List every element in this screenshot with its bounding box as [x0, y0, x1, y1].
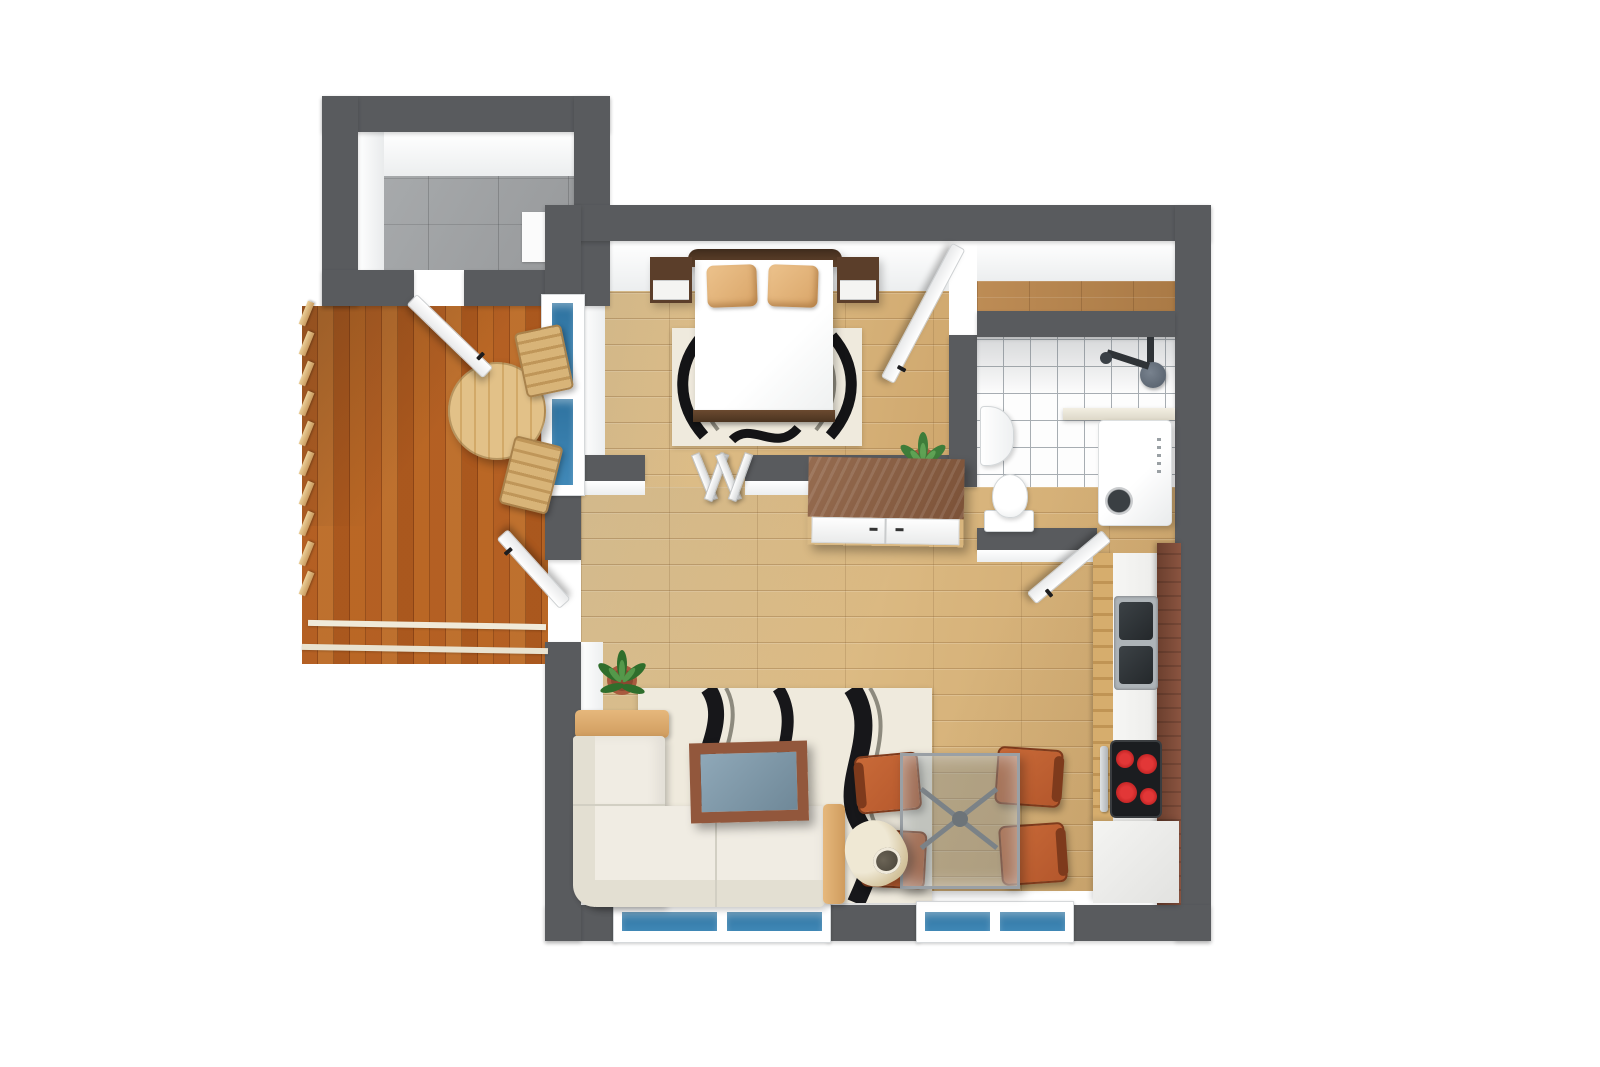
sink-basin-upper: [1119, 602, 1153, 640]
stove-cooktop: [1112, 742, 1160, 816]
plant-icon: [596, 648, 648, 704]
pillow: [706, 264, 757, 308]
kitchen-end-cabinet: [1093, 821, 1179, 903]
sink-basin-lower: [1119, 646, 1153, 684]
lamp-shade-opening: [868, 843, 905, 879]
washing-machine-controls: [1157, 433, 1161, 473]
storage-top-wall: [322, 96, 610, 132]
bed-footboard: [693, 410, 835, 422]
sideboard-handle: [869, 528, 877, 531]
nightstand-left: [650, 257, 692, 303]
entry-hall-floor: [977, 281, 1175, 313]
sideboard: [807, 457, 965, 548]
burner: [1140, 788, 1157, 805]
washing-machine: [1098, 420, 1172, 526]
bedroom-south-wall-face-left: [581, 481, 645, 495]
burner: [1137, 754, 1157, 774]
bedroom-south-wall-left: [581, 455, 645, 481]
living-window-pane-right: [725, 910, 824, 933]
shower-sprayer: [1100, 352, 1112, 364]
sofa-cushion-seam: [573, 804, 665, 806]
north-exterior-wall: [574, 205, 1211, 241]
sofa-backrest-bottom: [573, 880, 825, 907]
storage-left-wall-face: [358, 132, 384, 270]
sofa-armrest-right: [823, 804, 845, 904]
kitchen-window-pane-left: [923, 910, 992, 933]
pillow: [767, 264, 818, 308]
sideboard-door-seam: [884, 518, 886, 544]
kitchen-window-pane-right: [998, 910, 1067, 933]
entry-hall-wall-face: [977, 241, 1175, 281]
burner: [1116, 750, 1134, 768]
bathroom-north-wall: [977, 311, 1175, 337]
west-wall-segment-1: [545, 205, 581, 300]
storage-top-wall-face: [358, 132, 574, 176]
nightstand-right: [837, 257, 879, 303]
sideboard-handle: [895, 528, 903, 531]
sideboard-doors: [811, 517, 959, 546]
nightstand-drawers: [840, 280, 876, 300]
burner: [1116, 782, 1137, 803]
living-plant: [596, 648, 648, 704]
storage-bottom-wall-left: [322, 270, 414, 306]
shower-glass-screen: [1063, 408, 1175, 420]
kitchen-sink: [1114, 596, 1158, 690]
living-room-window: [613, 901, 831, 943]
sofa-armrest-left: [575, 710, 669, 738]
toilet-bowl: [992, 474, 1028, 518]
dining-table: [900, 753, 1020, 889]
kitchen-window: [916, 901, 1074, 943]
table-center-post: [952, 811, 968, 827]
south-wall-segment-3: [1070, 905, 1211, 941]
washing-machine-door: [1105, 487, 1133, 515]
oven-handle: [1100, 746, 1108, 812]
coffee-table: [689, 740, 809, 823]
south-wall-segment-2: [827, 905, 920, 941]
floor-plan: [0, 0, 1600, 1067]
nightstand-drawers: [653, 280, 689, 300]
living-window-pane-left: [620, 910, 719, 933]
sideboard-top: [808, 457, 965, 520]
